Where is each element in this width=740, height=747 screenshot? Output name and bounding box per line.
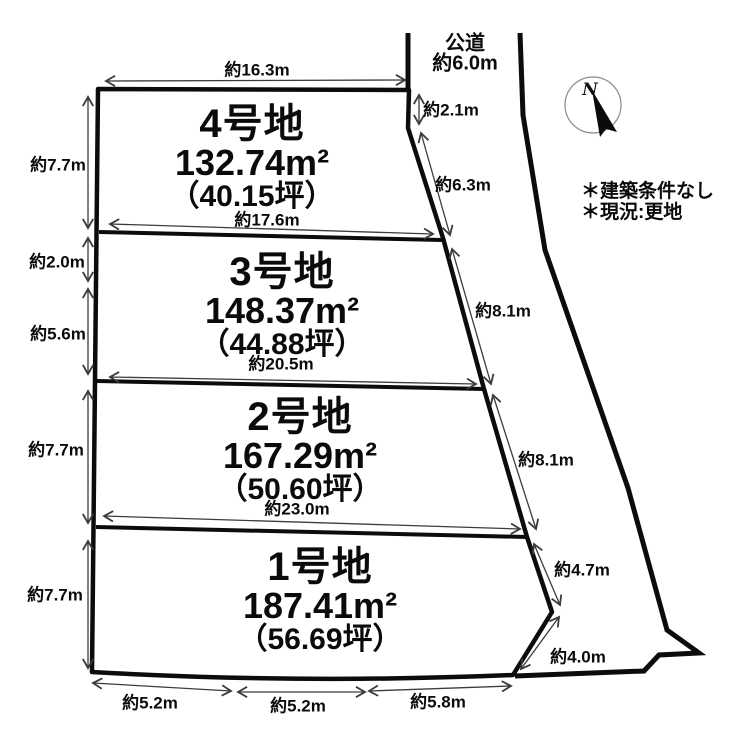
dim-bottom-5-2-b: 約5.2m [270,692,326,717]
plot-1-tsubo: （56.69坪） [237,625,402,655]
plot-1-area: 187.41m² [237,588,402,624]
dim-left-5-6: 約5.6m [30,320,86,345]
dim-left-7-7-c: 約7.7m [27,581,83,606]
plot-3-area: 148.37m² [199,293,364,329]
plot-4-label: 4号地 132.74m² （40.15坪） [169,104,334,212]
road-name: 公道 [432,34,498,54]
dim-right-8-1-b: 約8.1m [518,446,574,471]
compass: N [565,77,621,137]
dim-left-7-7-a: 約7.7m [30,151,86,176]
plot-3-name: 3号地 [199,252,364,292]
dim-mid-20-5: 約20.5m [248,350,313,375]
plot-1-label: 1号地 187.41m² （56.69坪） [237,547,402,655]
dim-top-16-3: 約16.3m [224,56,289,81]
notes: ＊建築条件なし ＊現況:更地 [581,181,714,224]
dim-bottom-5-8: 約5.8m [410,688,466,713]
plot-2-area: 167.29m² [217,438,382,474]
dim-mid-23-0: 約23.0m [264,495,329,520]
plot-2-label: 2号地 167.29m² （50.60坪） [217,397,382,505]
dim-right-8-1-a: 約8.1m [475,297,531,322]
plot-1-name: 1号地 [237,547,402,587]
road-width: 約6.0m [432,54,498,74]
dim-right-4-0: 約4.0m [550,643,606,668]
plot-4-name: 4号地 [169,104,334,144]
compass-needle [592,90,617,137]
dim-right-6-3: 約6.3m [435,171,491,196]
site-plan-canvas: N 公道 約6.0m ＊建築 [0,0,740,747]
plot-3-label: 3号地 148.37m² （44.88坪） [199,252,364,360]
note-building-conditions: ＊建築条件なし [581,181,714,202]
dim-right-4-7: 約4.7m [554,556,610,581]
plot-4-area: 132.74m² [169,145,334,181]
plot-2-name: 2号地 [217,397,382,437]
dim-left-2-0: 約2.0m [29,248,85,273]
compass-north-label: N [581,80,599,100]
dim-left-7-7-b: 約7.7m [28,436,84,461]
dim-right-2-1: 約2.1m [423,96,479,121]
road-label: 公道 約6.0m [432,34,498,75]
dim-bottom-5-2-a: 約5.2m [122,689,178,714]
note-current-state: ＊現況:更地 [581,202,714,223]
dim-mid-17-6: 約17.6m [234,206,299,231]
